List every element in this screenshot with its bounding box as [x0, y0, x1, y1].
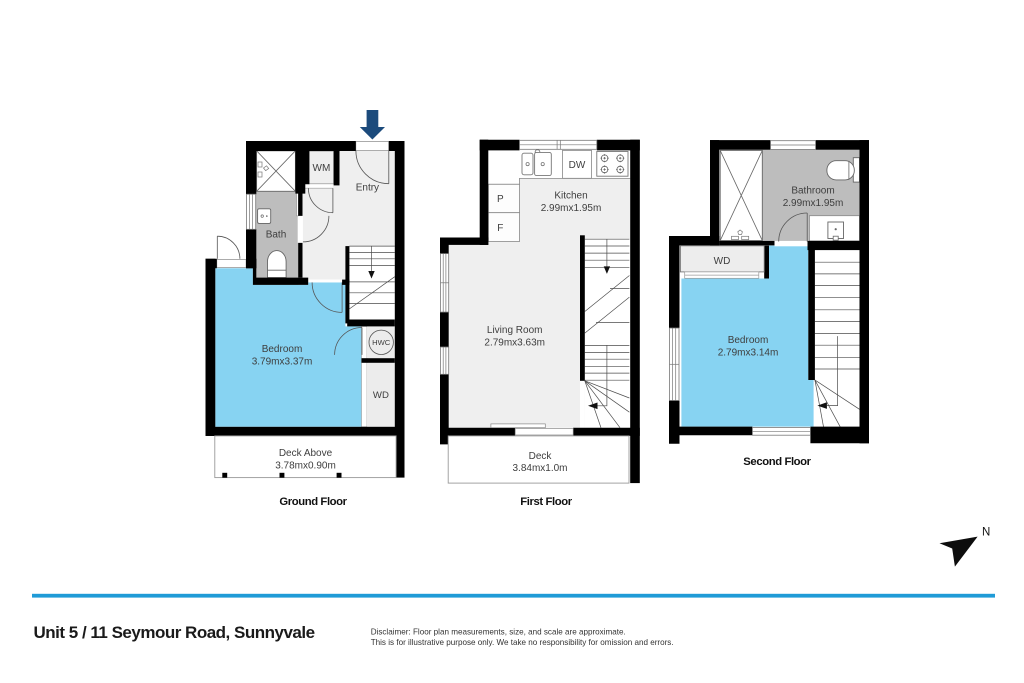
svg-text:Bedroom: Bedroom: [262, 344, 303, 355]
svg-text:WD: WD: [373, 390, 389, 401]
svg-text:2.79mx3.63m: 2.79mx3.63m: [484, 337, 545, 348]
svg-text:Bath: Bath: [266, 230, 287, 241]
svg-text:2.99mx1.95m: 2.99mx1.95m: [783, 198, 844, 209]
svg-text:Bathroom: Bathroom: [791, 186, 834, 197]
svg-text:P: P: [497, 194, 504, 205]
svg-text:Kitchen: Kitchen: [554, 191, 587, 202]
svg-text:N: N: [982, 527, 990, 539]
svg-text:Deck Above: Deck Above: [279, 448, 333, 459]
svg-text:Second Floor: Second Floor: [743, 456, 811, 468]
svg-text:Living Room: Living Room: [487, 325, 543, 336]
svg-text:WD: WD: [714, 256, 731, 267]
svg-text:HWC: HWC: [372, 338, 391, 347]
svg-text:Unit 5 / 11 Seymour Road, Sunn: Unit 5 / 11 Seymour Road, Sunnyvale: [34, 623, 315, 642]
svg-text:F: F: [497, 223, 503, 234]
svg-text:Deck: Deck: [529, 451, 553, 462]
svg-text:2.79mx3.14m: 2.79mx3.14m: [718, 347, 779, 358]
svg-text:Ground Floor: Ground Floor: [279, 496, 347, 508]
svg-text:WM: WM: [313, 163, 331, 174]
svg-text:Bedroom: Bedroom: [728, 335, 769, 346]
svg-text:2.99mx1.95m: 2.99mx1.95m: [541, 203, 602, 214]
svg-text:This is for illustrative purpo: This is for illustrative purpose only. W…: [371, 638, 674, 647]
svg-text:First Floor: First Floor: [520, 496, 572, 508]
svg-text:Entry: Entry: [356, 183, 379, 194]
svg-text:3.78mx0.90m: 3.78mx0.90m: [275, 460, 336, 471]
svg-text:Disclaimer: Floor plan measure: Disclaimer: Floor plan measurements, siz…: [371, 628, 626, 637]
svg-text:3.79mx3.37m: 3.79mx3.37m: [252, 357, 313, 368]
svg-text:DW: DW: [569, 160, 586, 171]
svg-text:3.84mx1.0m: 3.84mx1.0m: [512, 463, 567, 474]
